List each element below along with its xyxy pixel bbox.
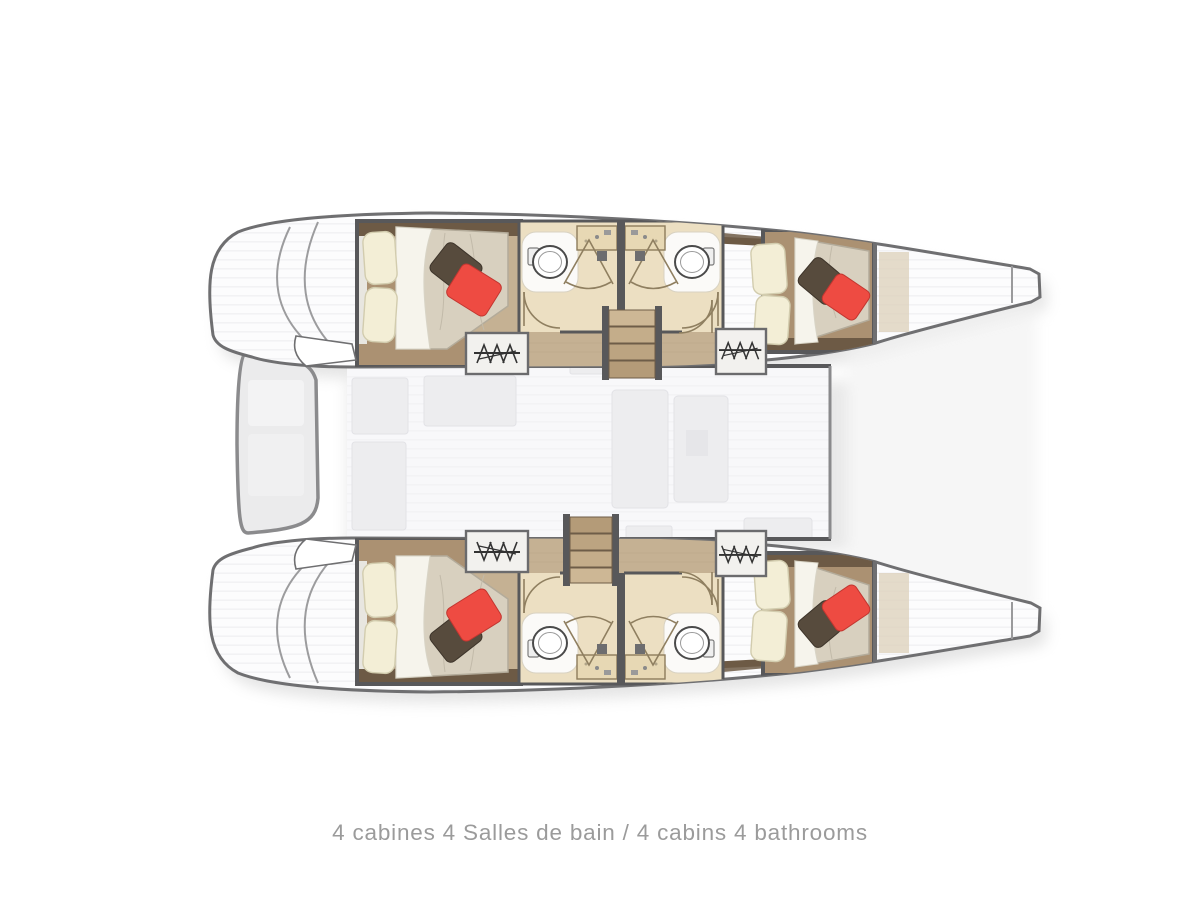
staircase-starboard: [563, 514, 619, 586]
salon: [347, 350, 831, 542]
floor-plan-canvas: [0, 0, 1200, 900]
caption: 4 cabines 4 Salles de bain / 4 cabins 4 …: [0, 820, 1200, 846]
salon-table: [686, 430, 708, 456]
staircase-port: [602, 306, 662, 380]
cockpit: [237, 353, 318, 533]
salon-tint: [347, 366, 831, 539]
galley-counter: [424, 376, 516, 426]
cockpit-seat: [248, 434, 304, 496]
settee: [612, 390, 668, 508]
cockpit-seat: [248, 380, 304, 426]
floor-plan-page: 4 cabines 4 Salles de bain / 4 cabins 4 …: [0, 0, 1200, 900]
